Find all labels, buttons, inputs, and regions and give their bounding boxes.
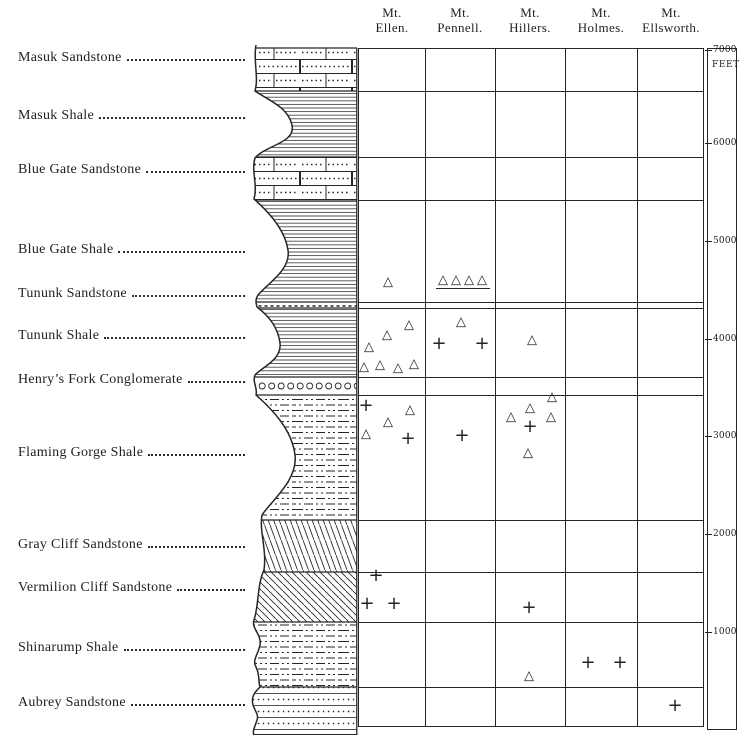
cross-marker: +: [431, 335, 446, 353]
triangle-marker: △: [506, 411, 516, 424]
triangle-marker: △: [405, 404, 415, 417]
dotted-leader: [177, 589, 245, 591]
formation-boundary-line: [358, 302, 704, 303]
cross-marker: +: [521, 599, 536, 617]
triangle-marker: △: [375, 359, 385, 372]
cross-marker: +: [359, 595, 374, 613]
dotted-leader: [188, 381, 245, 383]
dotted-leader: [127, 59, 245, 61]
triangle-marker: △: [438, 274, 448, 287]
dotted-leader: [104, 337, 245, 339]
formation-label-text: Shinarump Shale: [18, 640, 119, 656]
dotted-leader: [132, 295, 245, 297]
triangle-marker: △: [464, 274, 474, 287]
formation-label-text: Masuk Sandstone: [18, 50, 122, 66]
scale-tick-mark: [705, 436, 712, 437]
grid-column-divider: [495, 48, 496, 727]
grid-column-divider: [637, 48, 638, 727]
formation-boundary-line: [358, 572, 704, 573]
triangle-marker: △: [409, 358, 419, 371]
lithology-band: [250, 622, 357, 687]
formation-boundary-line: [358, 622, 704, 623]
formation-label: Blue Gate Sandstone: [18, 162, 248, 180]
formation-label-text: Gray Cliff Sandstone: [18, 537, 143, 553]
lithology-band: [250, 157, 357, 200]
formation-boundary-line: [358, 520, 704, 521]
cross-marker: +: [368, 567, 383, 585]
scale-tick-mark: [705, 534, 712, 535]
triangle-marker: △: [404, 319, 414, 332]
grid-border: [358, 48, 704, 727]
lithology-band: [250, 687, 357, 735]
triangle-marker: △: [547, 391, 557, 404]
formation-label-text: Aubrey Sandstone: [18, 695, 126, 711]
cross-marker: +: [358, 397, 373, 415]
formation-label: Shinarump Shale: [18, 640, 248, 658]
triangle-marker: △: [523, 447, 533, 460]
cross-marker: +: [522, 418, 537, 436]
scale-tick-mark: [705, 143, 712, 144]
grid-column-divider: [425, 48, 426, 727]
formation-label: Masuk Shale: [18, 108, 248, 126]
formation-boundary-line: [358, 687, 704, 688]
figure-canvas: Mt. Ellen. Mt. Pennell. Mt. Hillers. Mt.…: [0, 0, 744, 738]
formation-label: Gray Cliff Sandstone: [18, 537, 248, 555]
depth-scale-unit: FEET: [712, 60, 740, 70]
formation-boundary-line: [358, 157, 704, 158]
scale-tick-label: 1000: [713, 627, 737, 637]
dotted-leader: [124, 649, 245, 651]
formation-label-text: Tununk Shale: [18, 328, 99, 344]
formation-label: Tununk Shale: [18, 328, 248, 346]
column-header-line1: Mt.: [616, 5, 726, 20]
formation-boundary-line: [358, 200, 704, 201]
formation-label: Vermilion Cliff Sandstone: [18, 580, 248, 598]
formation-label-text: Blue Gate Sandstone: [18, 162, 141, 178]
triangle-marker: △: [393, 362, 403, 375]
cross-marker: +: [400, 430, 415, 448]
formation-label-text: Tununk Sandstone: [18, 286, 127, 302]
scale-tick-label: 6000: [713, 138, 737, 148]
formation-label: Blue Gate Shale: [18, 242, 248, 260]
formation-label: Aubrey Sandstone: [18, 695, 248, 713]
dotted-leader: [146, 171, 245, 173]
cross-marker: +: [667, 697, 682, 715]
scale-tick-label: 4000: [713, 334, 737, 344]
dotted-leader: [148, 454, 245, 456]
triangle-group-underline: [436, 288, 490, 289]
cross-marker: +: [474, 335, 489, 353]
scale-tick-label: 5000: [713, 236, 737, 246]
formation-boundary-line: [358, 395, 704, 396]
dotted-leader: [99, 117, 245, 119]
lithology-column: [248, 45, 360, 737]
scale-tick-label: 2000: [713, 529, 737, 539]
formation-boundary-line: [358, 308, 704, 309]
lithology-band: [250, 520, 357, 572]
cross-marker: +: [580, 654, 595, 672]
triangle-marker: △: [361, 428, 371, 441]
scale-tick-label: 3000: [713, 431, 737, 441]
formation-label: Masuk Sandstone: [18, 50, 248, 68]
triangle-marker: △: [451, 274, 461, 287]
formation-label: Henry’s Fork Conglomerate: [18, 372, 248, 390]
scale-tick-mark: [705, 241, 712, 242]
triangle-marker: △: [382, 329, 392, 342]
triangle-marker: △: [383, 416, 393, 429]
triangle-marker: △: [364, 341, 374, 354]
triangle-marker: △: [477, 274, 487, 287]
dotted-leader: [131, 704, 245, 706]
column-header-line2: Ellsworth.: [616, 20, 726, 35]
formation-label-text: Henry’s Fork Conglomerate: [18, 372, 183, 388]
scale-tick-mark: [705, 339, 712, 340]
cross-marker: +: [454, 427, 469, 445]
cross-marker: +: [612, 654, 627, 672]
formation-label-text: Flaming Gorge Shale: [18, 445, 143, 461]
formation-boundary-line: [358, 377, 704, 378]
lithology-bands: [250, 48, 357, 735]
lithology-band: [250, 48, 357, 91]
formation-label-text: Vermilion Cliff Sandstone: [18, 580, 172, 596]
formation-label-text: Masuk Shale: [18, 108, 94, 124]
triangle-marker: △: [383, 276, 393, 289]
scale-tick-label: 7000: [713, 45, 737, 55]
triangle-marker: △: [456, 316, 466, 329]
grid-column-divider: [565, 48, 566, 727]
scale-tick-mark: [705, 50, 712, 51]
cross-marker: +: [386, 595, 401, 613]
lithology-band: [250, 302, 357, 308]
lithology-band: [250, 377, 357, 395]
dotted-leader: [118, 251, 245, 253]
column-header-ellsworth: Mt. Ellsworth.: [616, 5, 726, 35]
triangle-marker: △: [546, 411, 556, 424]
triangle-marker: △: [525, 402, 535, 415]
dotted-leader: [148, 546, 245, 548]
formation-label-text: Blue Gate Shale: [18, 242, 113, 258]
triangle-marker: △: [524, 670, 534, 683]
scale-tick-mark: [705, 632, 712, 633]
lithology-band: [250, 572, 357, 622]
triangle-marker: △: [359, 361, 369, 374]
formation-boundary-line: [358, 91, 704, 92]
formation-label: Flaming Gorge Shale: [18, 445, 248, 463]
triangle-marker: △: [527, 334, 537, 347]
formation-label: Tununk Sandstone: [18, 286, 248, 304]
